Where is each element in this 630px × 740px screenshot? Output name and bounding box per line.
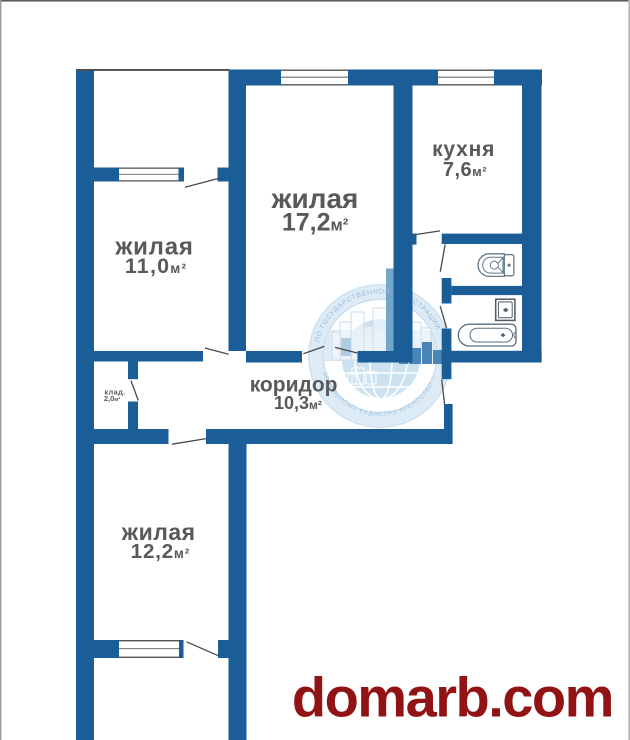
svg-text:кухня: кухня (432, 138, 495, 161)
svg-text:domarb.com: domarb.com (292, 666, 613, 729)
